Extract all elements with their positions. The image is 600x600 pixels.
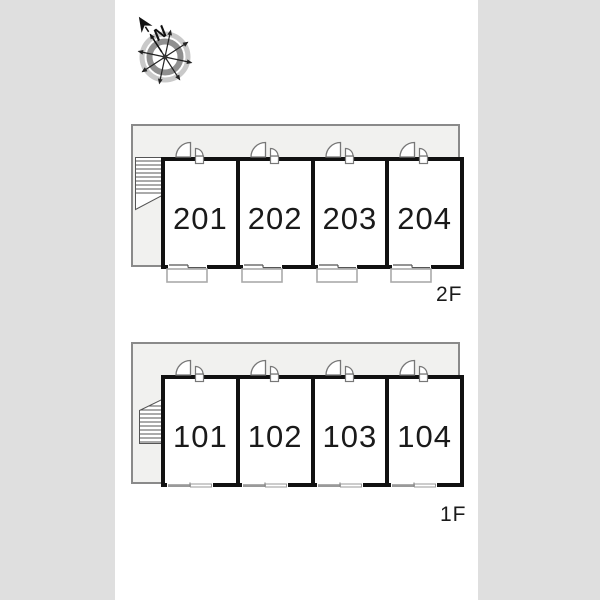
door-icon-room-102	[250, 353, 284, 383]
window-room-101	[166, 481, 218, 489]
rooms-block-1f: 101 102 103 104	[161, 375, 464, 487]
floor-plan-2f: 201 202 203 204	[131, 124, 460, 267]
window-room-102	[241, 481, 293, 489]
room-204: 204	[389, 161, 460, 265]
door-icon-room-202	[250, 135, 284, 165]
window-balcony-room-203	[316, 263, 362, 283]
rooms-block-2f: 201 202 203 204	[161, 157, 464, 269]
room-number: 101	[173, 421, 228, 452]
window-balcony-room-202	[241, 263, 287, 283]
balcony-outline	[242, 269, 282, 282]
door-icon-room-104	[399, 353, 433, 383]
compass-hub	[163, 55, 168, 60]
room-number: 103	[323, 421, 378, 452]
room-number: 202	[248, 203, 303, 234]
floor-label-1f: 1F	[440, 503, 467, 527]
room-101: 101	[165, 379, 236, 483]
door-icon-room-101	[175, 353, 209, 383]
room-102: 102	[240, 379, 311, 483]
door-icon-room-103	[325, 353, 359, 383]
floor-label-2f: 2F	[436, 283, 463, 307]
room-number: 102	[248, 421, 303, 452]
room-203: 203	[315, 161, 386, 265]
window-balcony-room-204	[390, 263, 436, 283]
window-balcony-room-201	[166, 263, 212, 283]
room-number: 201	[173, 203, 228, 234]
room-103: 103	[315, 379, 386, 483]
compass-rose: N	[123, 4, 208, 104]
balcony-outline	[391, 269, 431, 282]
door-icon-room-201	[175, 135, 209, 165]
room-number: 204	[397, 203, 452, 234]
room-number: 104	[397, 421, 452, 452]
window-room-104	[390, 481, 442, 489]
balcony-outline	[167, 269, 207, 282]
door-icon-room-203	[325, 135, 359, 165]
floor-plan-1f: 101 102 103 104	[131, 342, 460, 484]
room-number: 203	[323, 203, 378, 234]
balcony-outline	[317, 269, 357, 282]
room-104: 104	[389, 379, 460, 483]
window-room-103	[316, 481, 368, 489]
room-201: 201	[165, 161, 236, 265]
door-icon-room-204	[399, 135, 433, 165]
room-202: 202	[240, 161, 311, 265]
